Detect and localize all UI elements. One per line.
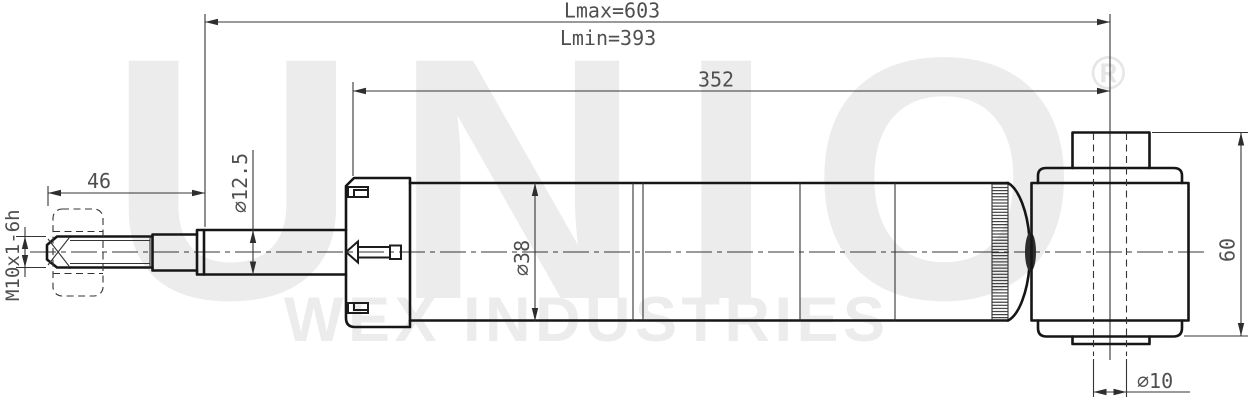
arrowhead — [1094, 389, 1107, 395]
label-stud-length: 46 — [87, 169, 111, 193]
watermark: UNIO ® WEX INDUSTRIES — [108, 0, 1126, 372]
label-body-length: 352 — [698, 68, 734, 92]
ext-lines-mount-height — [1152, 133, 1248, 337]
label-mount-height: 60 — [1216, 238, 1240, 262]
label-lmin: Lmin=393 — [560, 26, 656, 50]
label-thread-spec: M10x1-6h — [2, 209, 24, 301]
arrowhead — [48, 190, 61, 196]
arrowhead — [1238, 323, 1244, 336]
label-body-diameter: ⌀38 — [510, 240, 534, 276]
label-lmax: Lmax=603 — [564, 0, 660, 23]
shock-absorber-technical-drawing: UNIO ® WEX INDUSTRIES — [0, 0, 1249, 402]
drawing-canvas: UNIO ® WEX INDUSTRIES — [0, 0, 1249, 402]
arrowhead — [1238, 133, 1244, 146]
label-pin-diameter: ⌀10 — [1137, 369, 1173, 393]
arrowhead — [1114, 389, 1127, 395]
label-rod-diameter: ⌀12.5 — [228, 153, 252, 213]
knurled-band — [993, 185, 1008, 321]
